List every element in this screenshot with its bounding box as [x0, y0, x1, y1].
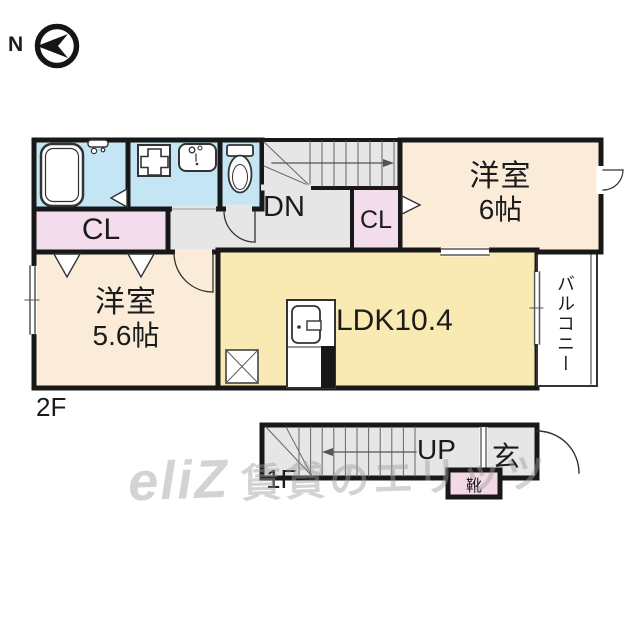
washing-machine-icon: [138, 145, 170, 176]
floor-1f-label: 1F: [266, 464, 296, 495]
washbasin-icon: [179, 144, 216, 171]
window-bedroom-right-bottom: [441, 248, 489, 257]
appliance-space-icon: [226, 350, 258, 383]
bedroom-right-size: 6帖: [400, 194, 601, 226]
stairs-down-label: DN: [263, 191, 305, 224]
compass-icon: [37, 27, 77, 66]
floor-2f-label: 2F: [36, 392, 66, 423]
shoe-box-label: 靴: [448, 472, 500, 496]
bedroom-right-name: 洋室: [400, 160, 601, 194]
entrance-label: 玄: [492, 435, 520, 475]
bedroom-right-label: 洋室 6帖: [400, 160, 601, 226]
ldk-label: LDK10.4: [336, 304, 453, 338]
compass-north-label: N: [8, 33, 23, 57]
bedroom-left-name: 洋室: [34, 286, 218, 320]
entrance-door-arc: [537, 431, 579, 473]
closet-middle-label: CL: [352, 206, 400, 235]
kitchen-unit-icon: [287, 300, 335, 388]
balcony-label: バルコニー: [544, 262, 578, 386]
floor-plan-page: { "compass": { "north_label": "N" }, "fl…: [0, 0, 640, 640]
closet-left-label: CL: [34, 213, 168, 247]
bedroom-left-size: 5.6帖: [34, 320, 218, 352]
bedroom-left-label: 洋室 5.6帖: [34, 286, 218, 352]
stairwell-2f: [262, 140, 400, 188]
stairs-up-label: UP: [417, 434, 456, 466]
toilet-icon: [227, 145, 253, 193]
